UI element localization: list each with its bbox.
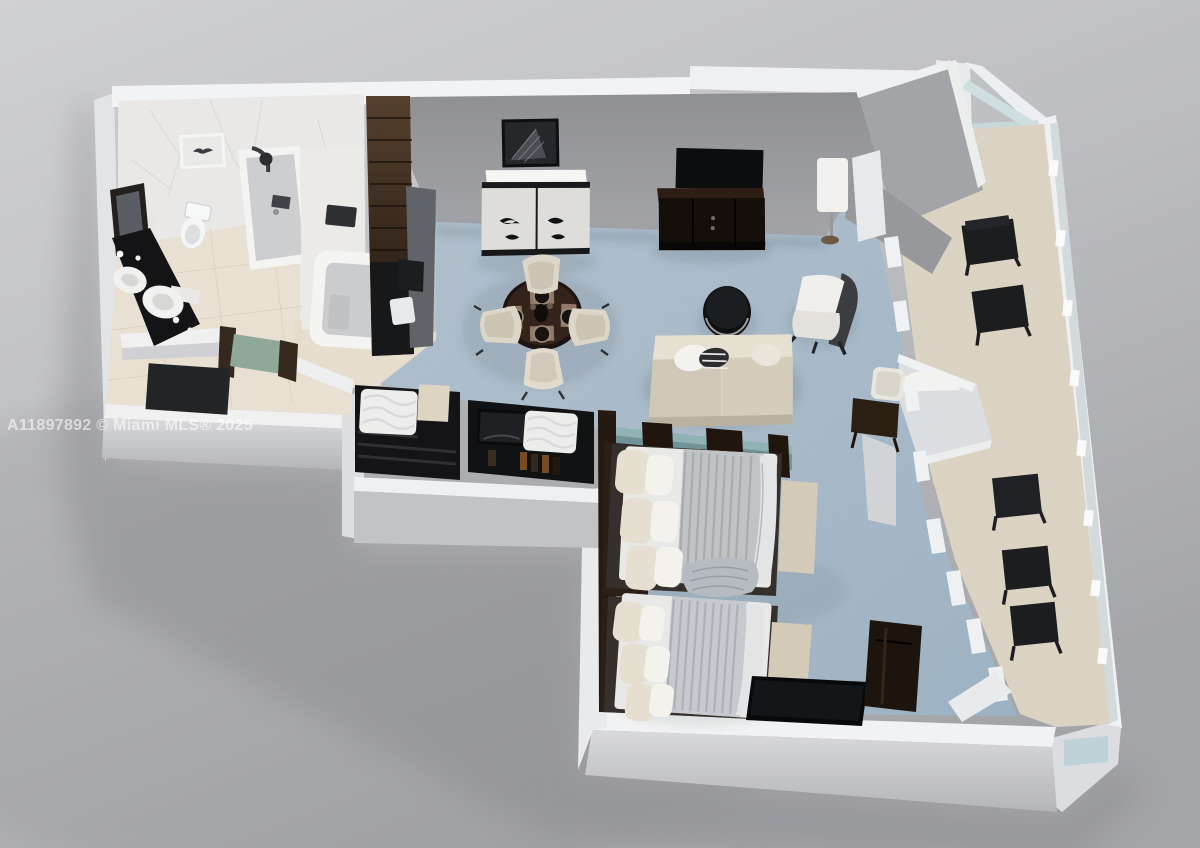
- svg-text:A11897892 © Miami MLS® 2025: A11897892 © Miami MLS® 2025: [7, 417, 253, 434]
